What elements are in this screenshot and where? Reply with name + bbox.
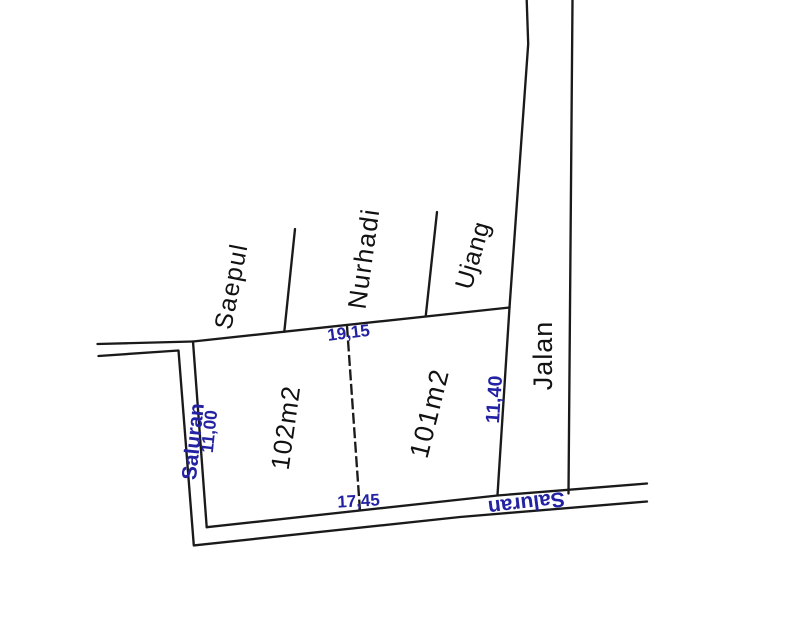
svg-text:Jalan: Jalan [528,321,558,391]
svg-text:Ujang: Ujang [450,218,496,292]
svg-text:102m2: 102m2 [265,383,307,471]
svg-text:11,40: 11,40 [482,375,507,424]
svg-text:17,45: 17,45 [337,490,380,511]
svg-text:Nurhadi: Nurhadi [342,206,386,311]
svg-text:19,15: 19,15 [326,321,371,345]
svg-text:101m2: 101m2 [404,365,455,461]
svg-text:Saepul: Saepul [209,241,253,332]
